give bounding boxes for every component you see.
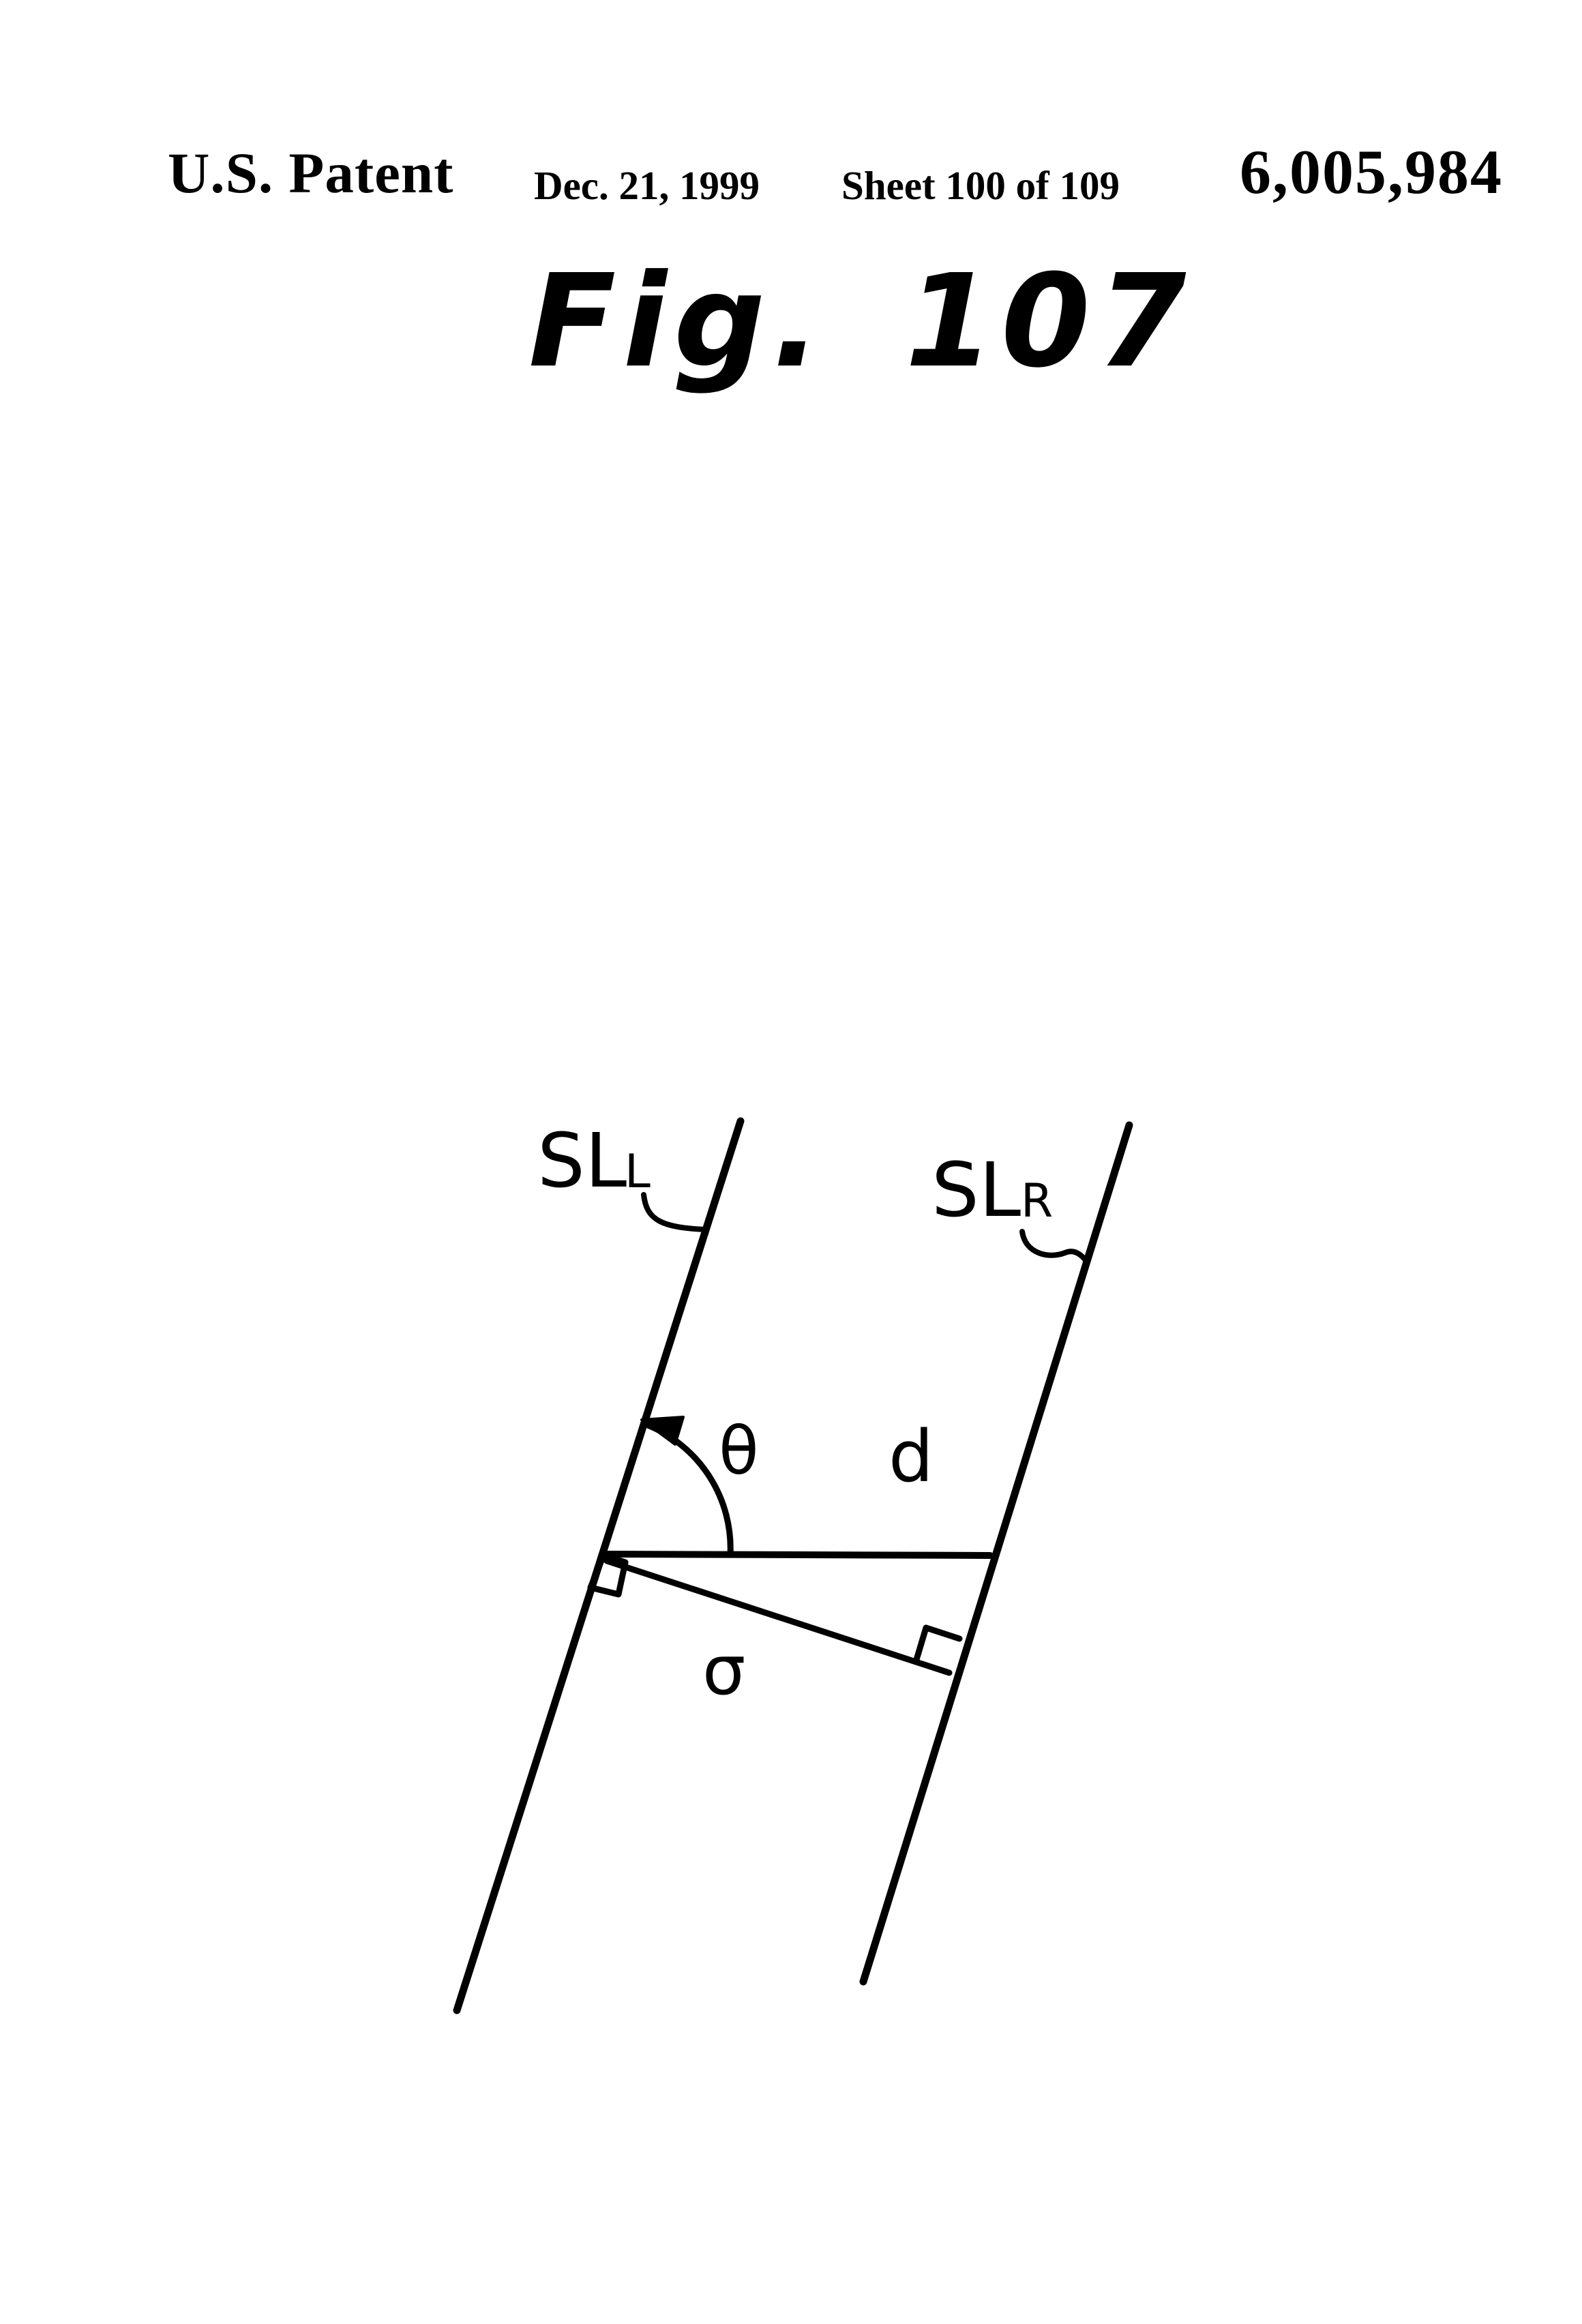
angle-arc-arrowhead bbox=[642, 1417, 683, 1444]
patent-sheet-page: U.S. Patent Dec. 21, 1999 Sheet 100 of 1… bbox=[0, 0, 1582, 2324]
label-theta: θ bbox=[719, 1413, 759, 1489]
label-sll-main: SL bbox=[537, 1117, 627, 1204]
right-angle-marker-right bbox=[916, 1628, 959, 1662]
label-slr-subscript: R bbox=[1021, 1174, 1053, 1228]
label-sigma: σ bbox=[702, 1630, 745, 1710]
label-sll-subscript: L bbox=[625, 1145, 651, 1199]
figure-107-diagram: SL L SL R θ d σ bbox=[0, 0, 1582, 2324]
leader-line-sll bbox=[644, 1195, 705, 1230]
leader-line-slr bbox=[1022, 1232, 1086, 1260]
perpendicular-line-sigma bbox=[607, 1561, 949, 1673]
label-d: d bbox=[889, 1415, 934, 1498]
label-slr-main: SL bbox=[931, 1146, 1021, 1234]
distance-line-d bbox=[605, 1554, 990, 1555]
